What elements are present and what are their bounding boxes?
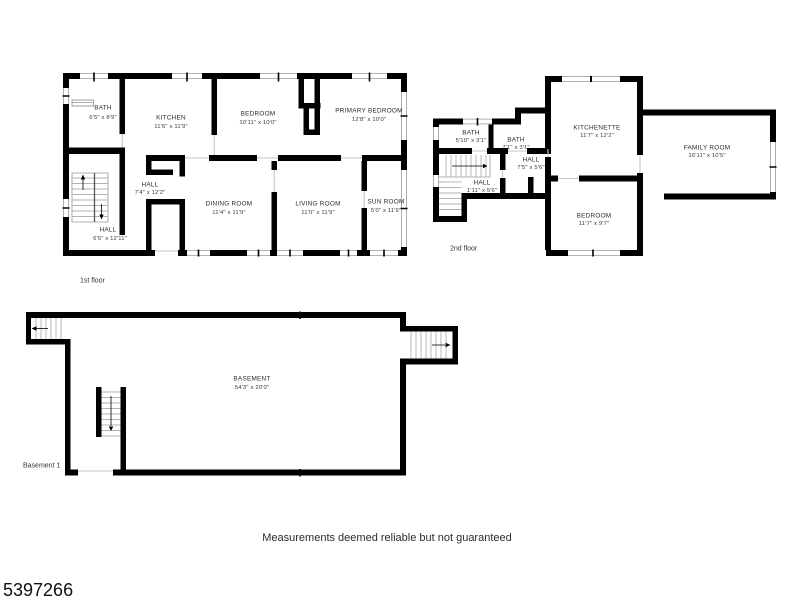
room-dims-hall-2f-b: 1'11" x 5'6" (467, 188, 497, 194)
stair-treads-lower (439, 182, 462, 210)
room-dims-kitchen: 11'6" x 11'9" (154, 124, 187, 130)
room-dims-bath-2f-a: 5'10" x 3'1" (456, 138, 487, 144)
room-name-kitchen: KITCHEN (156, 115, 186, 122)
room-name-living-room: LIVING ROOM (295, 201, 340, 208)
room-dims-hall-2f-a: 7'5" x 5'6" (517, 165, 544, 171)
measurements-disclaimer: Measurements deemed reliable but not gua… (262, 532, 512, 544)
basement-plan (26, 312, 458, 477)
room-dims-living-room: 11'0" x 11'9" (301, 210, 334, 216)
basement-wall-ticks (299, 312, 301, 477)
room-dims-basement: 54'3" x 20'0" (235, 385, 269, 391)
room-name-hall-2f-b: HALL (474, 180, 491, 187)
listing-id: 5397266 (3, 580, 73, 601)
floorplan-canvas (0, 0, 800, 600)
room-name-bedroom-2f: BEDROOM (577, 213, 612, 220)
room-name-hall-1f-a: HALL (142, 182, 159, 189)
room-name-sun-room: SUN ROOM (367, 199, 404, 206)
stair-treads (72, 178, 108, 217)
vanity-outline (72, 100, 94, 106)
caption-first-floor: 1st floor (80, 278, 105, 285)
floorplan-page: { "page": { "footer_disclaimer": "Measur… (0, 0, 800, 600)
room-dims-primary-bedroom: 12'8" x 10'0" (352, 117, 386, 123)
room-name-bath-2f-b: BATH (507, 137, 525, 144)
room-name-hall-1f-b: HALL (100, 227, 117, 234)
stair-up-arrowhead (81, 175, 85, 180)
room-name-family-room: FAMILY ROOM (684, 144, 731, 151)
caption-basement: Basement 1 (23, 462, 60, 469)
room-dims-hall-1f-b: 6'5" x 12'11" (93, 236, 127, 242)
room-dims-bedroom-1f: 10'11" x 10'0" (239, 120, 276, 126)
room-name-bath-2f-a: BATH (462, 130, 480, 137)
room-name-primary-bedroom: PRIMARY BEDROOM (335, 108, 402, 115)
room-name-hall-2f-a: HALL (523, 157, 540, 164)
stair-direction-arrowhead (483, 164, 488, 168)
second-floor-plan (433, 76, 777, 257)
nook-stair-arrowhead (32, 326, 37, 331)
room-dims-dining-room: 11'4" x 11'9" (212, 210, 245, 216)
room-dims-bath-2f-b: 7'1" x 3'1" (502, 145, 529, 151)
room-name-bath-1f: BATH (94, 105, 112, 112)
room-dims-bath-1f: 6'5" x 8'9" (89, 115, 116, 121)
bath-vanity (72, 100, 94, 106)
basement-walls (26, 312, 458, 476)
caption-second-floor: 2nd floor (450, 246, 477, 253)
room-name-dining-room: DINING ROOM (206, 201, 253, 208)
bumpout-stair-arrowhead (446, 343, 451, 348)
room-dims-sun-room: 5'0" x 11'9" (371, 208, 401, 214)
room-name-kitchenette: KITCHENETTE (573, 125, 620, 132)
room-dims-kitchenette: 11'7" x 12'2" (580, 133, 614, 139)
room-dims-hall-1f-a: 7'4" x 12'2" (135, 190, 166, 196)
room-name-bedroom-1f: BEDROOM (241, 111, 276, 118)
stair-down-arrowhead (99, 215, 103, 220)
room-name-basement: BASEMENT (233, 376, 270, 383)
room-dims-family-room: 16'11" x 10'5" (688, 153, 725, 159)
room-dims-bedroom-2f: 11'7" x 9'7" (579, 221, 609, 227)
first-floor-stairs (72, 173, 108, 222)
